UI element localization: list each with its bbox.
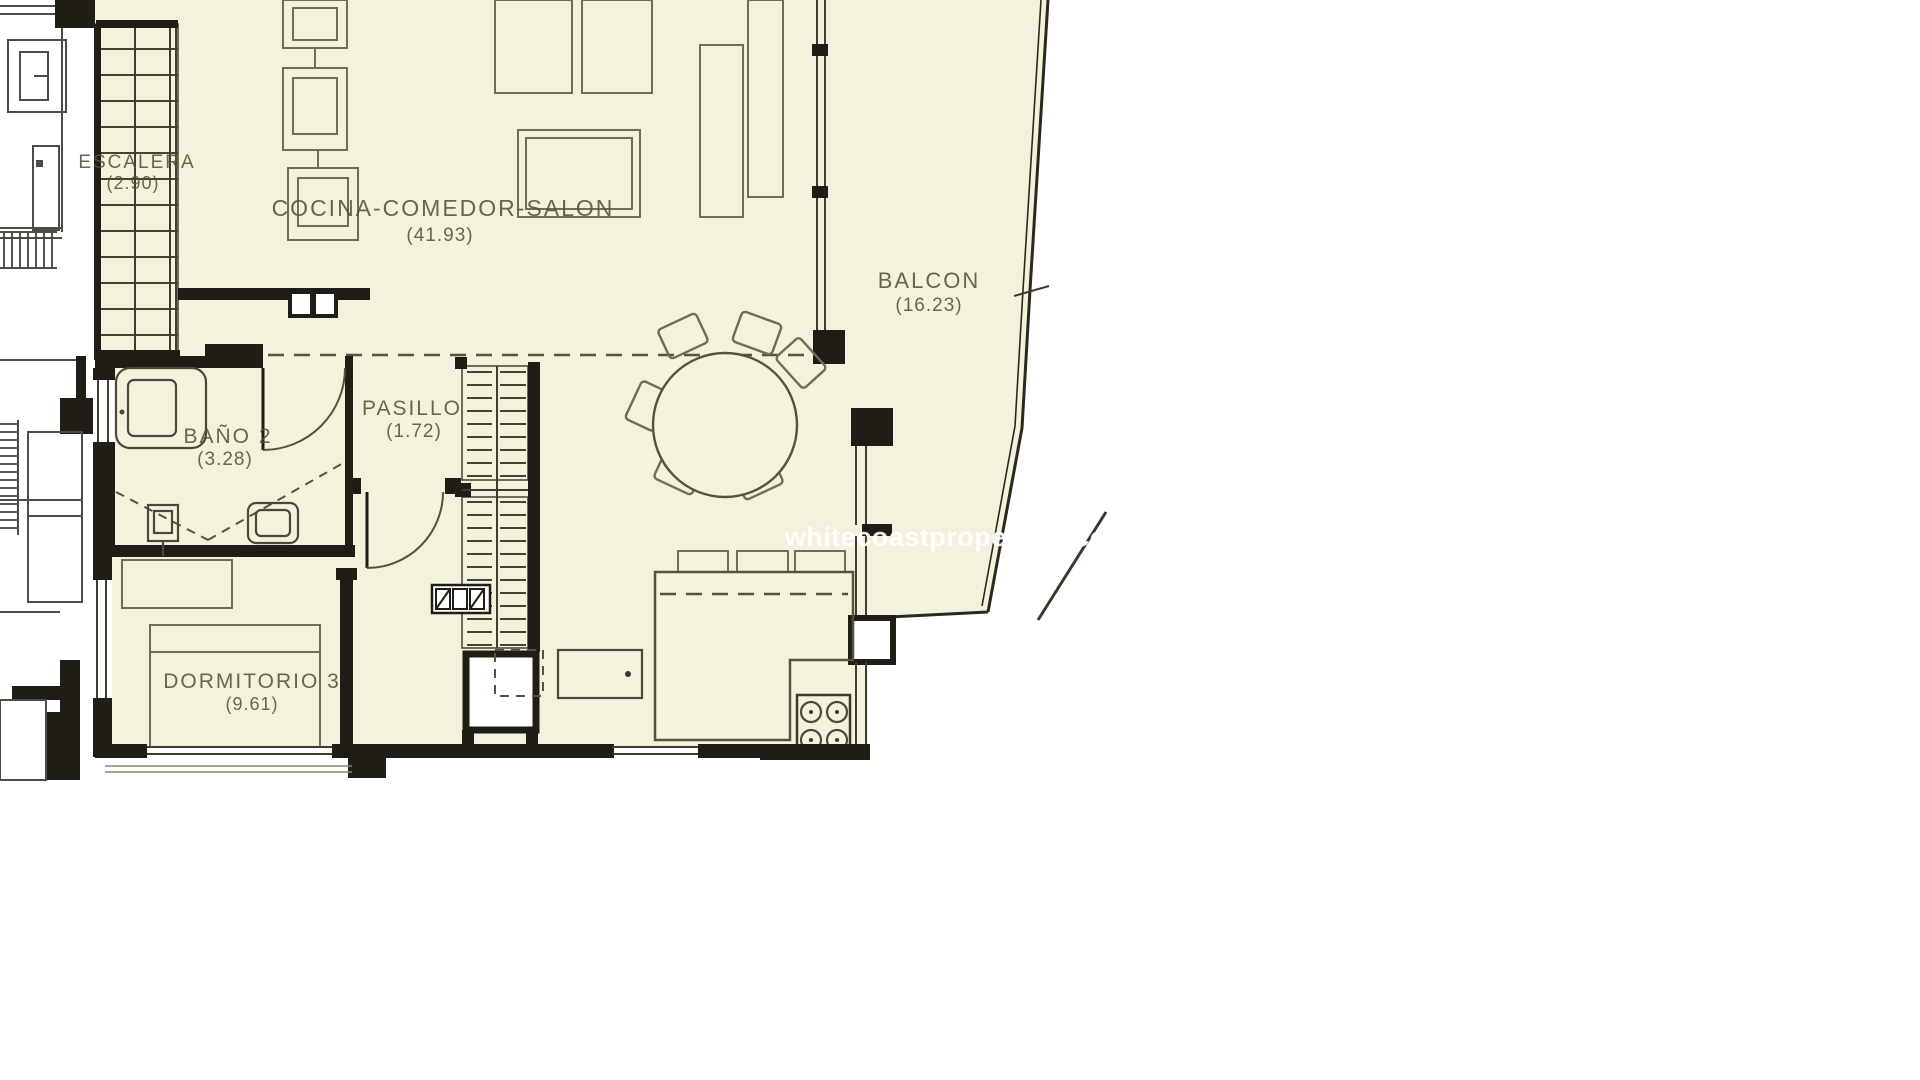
room-area-pasillo: (1.72) [386, 421, 442, 442]
electrical-panel-symbol [432, 585, 490, 613]
shaft [466, 654, 536, 730]
floor-plan-canvas: ESCALERA (2.90) COCINA-COMEDOR-SALON (41… [0, 0, 1920, 1080]
round-table [653, 353, 797, 497]
room-area-cocina: (41.93) [406, 225, 473, 246]
stair-flight-ticks [0, 232, 57, 268]
floor-plan-page: ESCALERA (2.90) COCINA-COMEDOR-SALON (41… [0, 0, 1920, 1080]
door-handle-dot [36, 160, 43, 167]
side-ticks [0, 420, 18, 535]
sliding-door-box [314, 292, 336, 316]
window [147, 747, 332, 754]
window [612, 747, 698, 754]
bottom-walls [95, 744, 870, 778]
room-area-escalera: (2.90) [106, 173, 159, 193]
room-area-balcon: (16.23) [895, 295, 962, 316]
room-area-dormitorio3: (9.61) [225, 694, 278, 714]
sill-lines [105, 766, 352, 772]
watermark-text: whitecoastproperties.com [784, 522, 1132, 552]
room-area-bano2: (3.28) [197, 449, 253, 470]
sliding-door-box [290, 292, 312, 316]
room-label-dormitorio3: DORMITORIO 3 [163, 670, 341, 693]
kitchen-window-frame [851, 618, 893, 662]
room-label-pasillo: PASILLO [362, 397, 462, 420]
room-label-cocina: COCINA-COMEDOR-SALON [272, 195, 615, 221]
room-label-balcon: BALCON [878, 268, 980, 293]
room-label-escalera: ESCALERA [78, 152, 195, 173]
room-label-bano2: BAÑO 2 [183, 424, 272, 448]
